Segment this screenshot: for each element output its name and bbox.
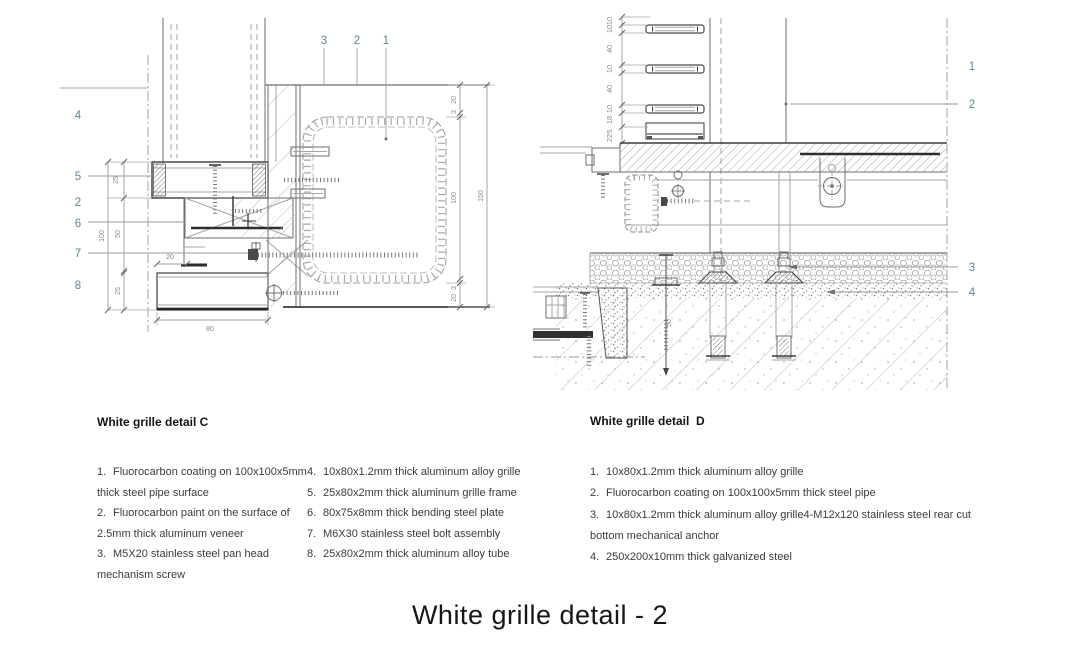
dim-label: 10	[605, 17, 614, 25]
dim-label: 150	[478, 190, 485, 202]
legend-item-number: 4.	[307, 462, 323, 483]
aluminum-panel-section	[163, 18, 276, 162]
detail-c-legend-col2: 4.10x80x1.2mm thick aluminum alloy grill…	[307, 462, 547, 586]
legend-item-number: 5.	[307, 483, 323, 504]
dim-label: 25	[113, 176, 120, 184]
callout-2: 2	[969, 99, 975, 111]
detail-c-legend: White grille detail C 1.Fluorocarbon coa…	[97, 415, 549, 586]
legend-item-number: 3.	[590, 505, 606, 526]
legend-item-text: 25x80x2mm thick aluminum grille frame	[323, 487, 517, 499]
dim-label: 80	[206, 326, 214, 333]
dim-label: 40	[605, 85, 614, 93]
legend-item-text: Fluorocarbon coating on 100x100x5mm thic…	[606, 487, 876, 499]
dim-label: 50	[115, 230, 122, 238]
legend-item: 2.Fluorocarbon paint on the surface of 2…	[97, 503, 307, 544]
dim-label: 18	[605, 116, 614, 124]
legend-item: 1.Fluorocarbon coating on 100x100x5mm th…	[97, 462, 307, 503]
legend-item-text: 25x80x2mm thick aluminum alloy tube	[323, 548, 509, 560]
callout-3: 3	[321, 35, 327, 47]
legend-item-text: 10x80x1.2mm thick aluminum alloy grille4…	[590, 509, 971, 542]
callout-7: 7	[75, 248, 81, 260]
legend-item-number: 1.	[590, 462, 606, 483]
legend-item-number: 8.	[307, 544, 323, 565]
legend-item-text: Fluorocarbon coating on 100x100x5mm thic…	[97, 466, 307, 499]
legend-item: 3.10x80x1.2mm thick aluminum alloy grill…	[590, 505, 990, 548]
legend-item-number: 4.	[590, 547, 606, 568]
dim-label: 40	[605, 45, 614, 53]
legend-item-text: M5X20 stainless steel pan head mechanism…	[97, 548, 269, 581]
dim-label: 25	[115, 287, 122, 295]
legend-item-text: 10x80x1.2mm thick aluminum alloy grille	[606, 466, 803, 478]
concrete-slab	[620, 143, 947, 172]
dim-label: 100	[451, 192, 458, 204]
callout-2b: 2	[75, 197, 81, 209]
legend-item-number: 6.	[307, 503, 323, 524]
legend-item: 3.M5X20 stainless steel pan head mechani…	[97, 544, 307, 585]
dim-label: 225	[605, 130, 614, 143]
detail-c-drawing: 25 100 50 25 20 80 20 3 100 3	[60, 18, 495, 333]
legend-item-number: 2.	[590, 483, 606, 504]
callout-1: 1	[383, 35, 389, 47]
detail-drawings: 25 100 50 25 20 80 20 3 100 3	[0, 0, 1080, 400]
dim-label: 3	[451, 110, 458, 114]
legend-item-text: Fluorocarbon paint on the surface of 2.5…	[97, 507, 290, 540]
callout-4: 4	[969, 287, 976, 299]
legend-item-text: M6X30 stainless steel bolt assembly	[323, 528, 500, 540]
grille-bottom-frame	[646, 123, 704, 139]
detail-c-legend-col1: 1.Fluorocarbon coating on 100x100x5mm th…	[97, 462, 307, 586]
aluminum-tube-section	[157, 273, 268, 310]
legend-item: 7.M6X30 stainless steel bolt assembly	[307, 524, 547, 545]
legend-item-text: 10x80x1.2mm thick aluminum alloy grille	[323, 466, 520, 478]
legend-item: 8.25x80x2mm thick aluminum alloy tube	[307, 544, 547, 565]
detail-d-heading: White grille detail D	[590, 414, 990, 428]
legend-item: 5.25x80x2mm thick aluminum grille frame	[307, 483, 547, 504]
detail-c-heading: White grille detail C	[97, 415, 549, 429]
dim-label: 3	[451, 286, 458, 290]
callout-8: 8	[75, 280, 81, 292]
callout-6: 6	[75, 218, 81, 230]
callout-4: 4	[75, 110, 82, 122]
legend-item-text: 80x75x8mm thick bending steel plate	[323, 507, 504, 519]
drawing-sheet: { "page": { "title": "White grille detai…	[0, 0, 1080, 659]
legend-item: 4.10x80x1.2mm thick aluminum alloy grill…	[307, 462, 547, 483]
legend-item: 4.250x200x10mm thick galvanized steel	[590, 547, 990, 568]
dim-label: 20	[166, 254, 174, 261]
legend-item: 1.10x80x1.2mm thick aluminum alloy grill…	[590, 462, 990, 483]
legend-item: 6.80x75x8mm thick bending steel plate	[307, 503, 547, 524]
legend-item-text: 250x200x10mm thick galvanized steel	[606, 551, 792, 563]
dim-label: 10	[605, 65, 614, 73]
slab-edge-bracket	[540, 147, 620, 198]
steel-pipe-section	[303, 117, 446, 283]
legend-item-number: 3.	[97, 544, 113, 565]
legend-item-number: 1.	[97, 462, 113, 483]
dim-label: 100	[99, 230, 106, 242]
callout-2: 2	[354, 35, 360, 47]
legend-item-number: 2.	[97, 503, 113, 524]
dim-label: 10	[605, 25, 614, 33]
grille-slats	[646, 25, 704, 139]
legend-item: 2.Fluorocarbon coating on 100x100x5mm th…	[590, 483, 990, 504]
callout-5: 5	[75, 171, 81, 183]
callout-3: 3	[969, 262, 975, 274]
detail-d-legend: White grille detail D 1.10x80x1.2mm thic…	[590, 414, 990, 568]
dim-label: 20	[451, 96, 458, 104]
legend-item-number: 7.	[307, 524, 323, 545]
sheet-title: White grille detail - 2	[0, 600, 1080, 631]
detail-d-drawing: 10 10 40 10 40 10 18 225 50	[533, 14, 976, 390]
dim-label: 10	[605, 105, 614, 113]
dim-label: 20	[451, 294, 458, 302]
callout-1: 1	[969, 61, 975, 73]
